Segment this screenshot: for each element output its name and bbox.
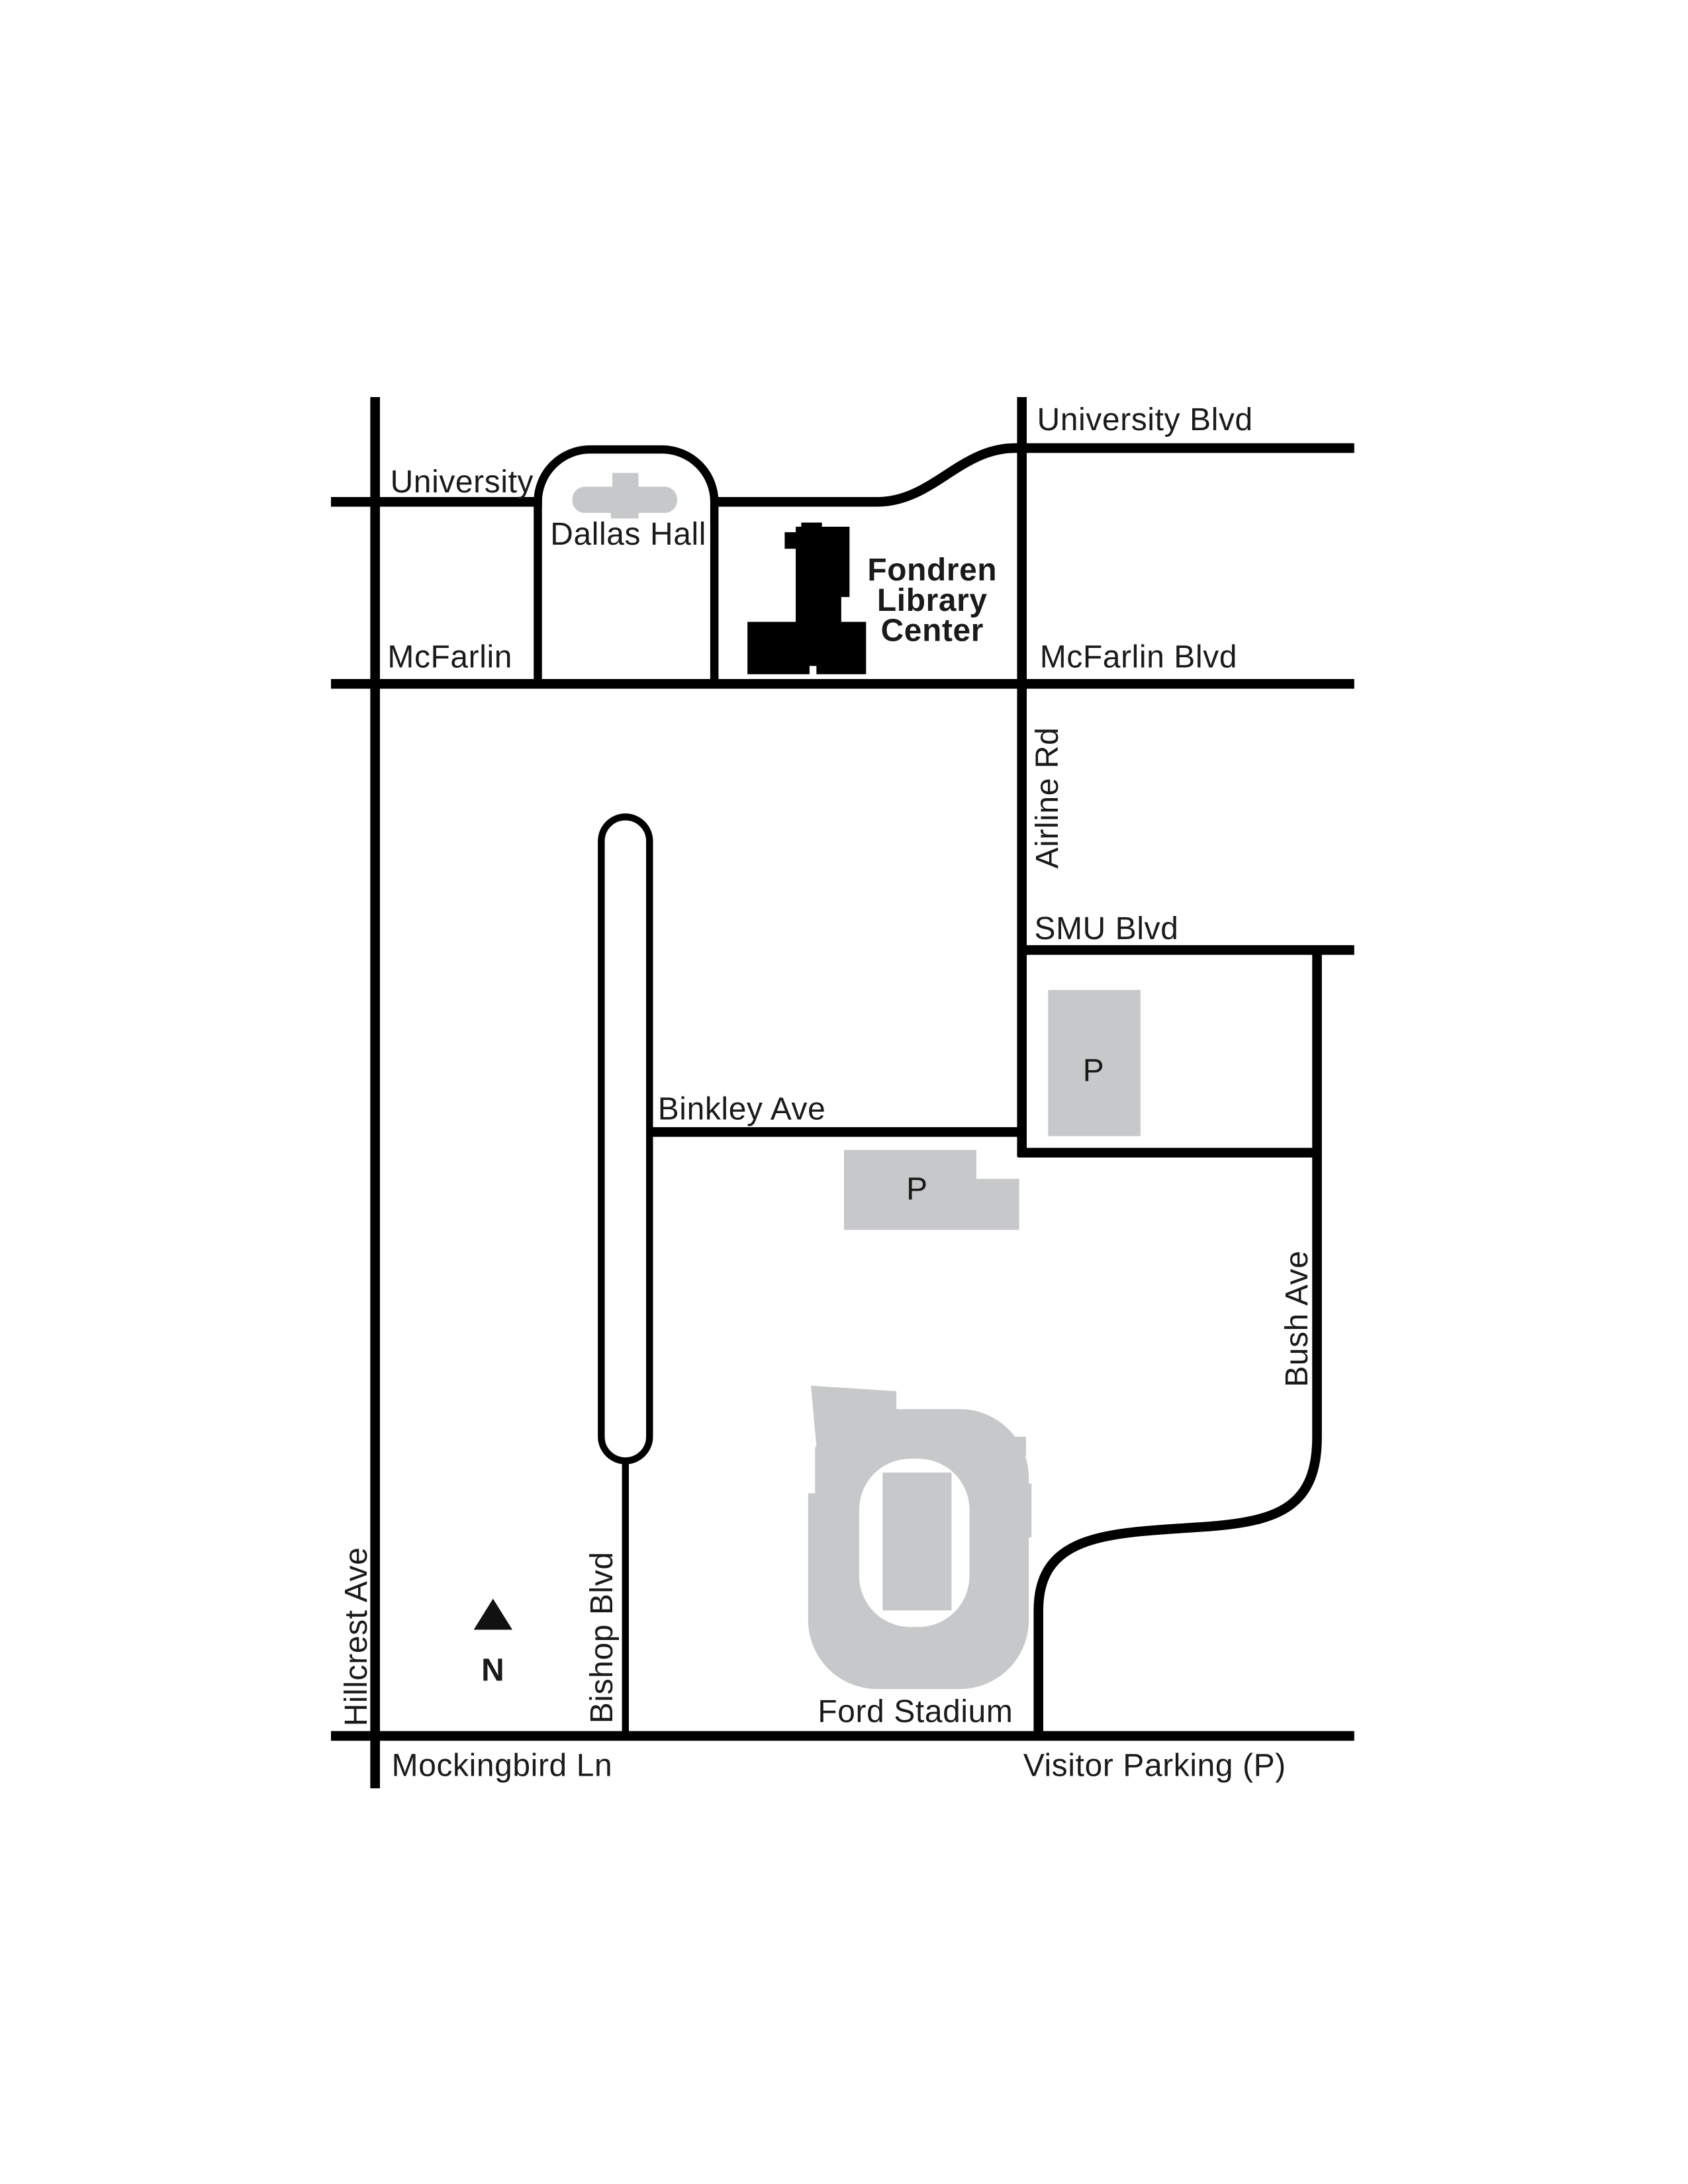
ford-stadium-field [882, 1473, 951, 1610]
road-bishop-blvd-oval [601, 817, 649, 1461]
ford-stadium-building [801, 1386, 1031, 1689]
dallas-hall-building [573, 473, 677, 519]
road-university-blvd [714, 448, 1354, 502]
ford-stadium-tab-e [1011, 1484, 1031, 1537]
label-binkley-ave: Binkley Ave [658, 1092, 826, 1127]
dallas-hall-north-wing [612, 473, 639, 491]
north-label: N [481, 1653, 504, 1688]
label-fondren-line3: Center [881, 614, 984, 649]
parking-lot-2 [844, 1150, 1019, 1230]
label-hillcrest-ave: Hillcrest Ave [339, 1547, 374, 1727]
label-mcfarlin: McFarlin [387, 639, 512, 674]
label-smu-blvd: SMU Blvd [1035, 911, 1179, 946]
fondren-library-west-wing [784, 532, 797, 549]
label-mcfarlin-blvd: McFarlin Blvd [1040, 639, 1237, 674]
label-bush-ave: Bush Ave [1280, 1250, 1315, 1387]
fondren-library-north-notch [801, 523, 821, 528]
parking-lot-2-east [976, 1179, 1019, 1230]
label-parking-symbol-2: P [906, 1171, 928, 1206]
ford-stadium-west-notch [801, 1448, 815, 1494]
campus-map-canvas: N University Blvd University Dallas Hall… [0, 0, 1688, 2184]
label-ford-stadium: Ford Stadium [818, 1694, 1013, 1729]
label-parking-symbol-1: P [1083, 1053, 1105, 1088]
label-visitor-parking: Visitor Parking (P) [1023, 1748, 1286, 1783]
label-university-blvd: University Blvd [1037, 402, 1253, 437]
campus-map-page: N University Blvd University Dallas Hall… [0, 0, 1688, 2184]
north-arrow-icon [474, 1599, 512, 1630]
fondren-library-main [747, 527, 866, 674]
compass-north: N [474, 1599, 512, 1688]
label-university: University [391, 465, 534, 500]
label-bishop-blvd: Bishop Blvd [585, 1551, 620, 1723]
label-mockingbird-ln: Mockingbird Ln [392, 1748, 613, 1783]
label-fondren-library-center: Fondren Library Center [867, 553, 997, 649]
label-dallas-hall: Dallas Hall [550, 517, 706, 552]
label-airline-rd: Airline Rd [1030, 727, 1065, 869]
fondren-library-building [747, 523, 866, 674]
ford-stadium-tab-ne [1003, 1437, 1026, 1456]
